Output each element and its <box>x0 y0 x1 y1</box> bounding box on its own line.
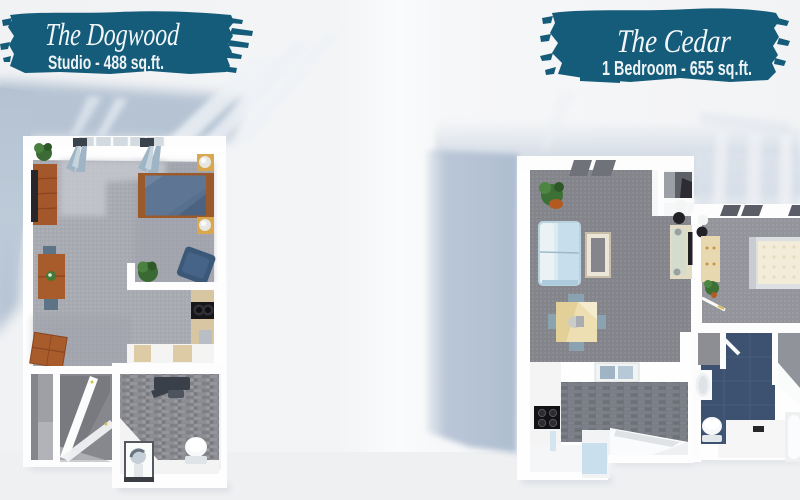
svg-text:Studio - 488 sq.ft.: Studio - 488 sq.ft. <box>48 52 164 74</box>
svg-text:1 Bedroom - 655 sq.ft.: 1 Bedroom - 655 sq.ft. <box>602 58 752 80</box>
svg-text:The Dogwood: The Dogwood <box>44 16 181 52</box>
svg-text:The Cedar: The Cedar <box>616 24 732 60</box>
